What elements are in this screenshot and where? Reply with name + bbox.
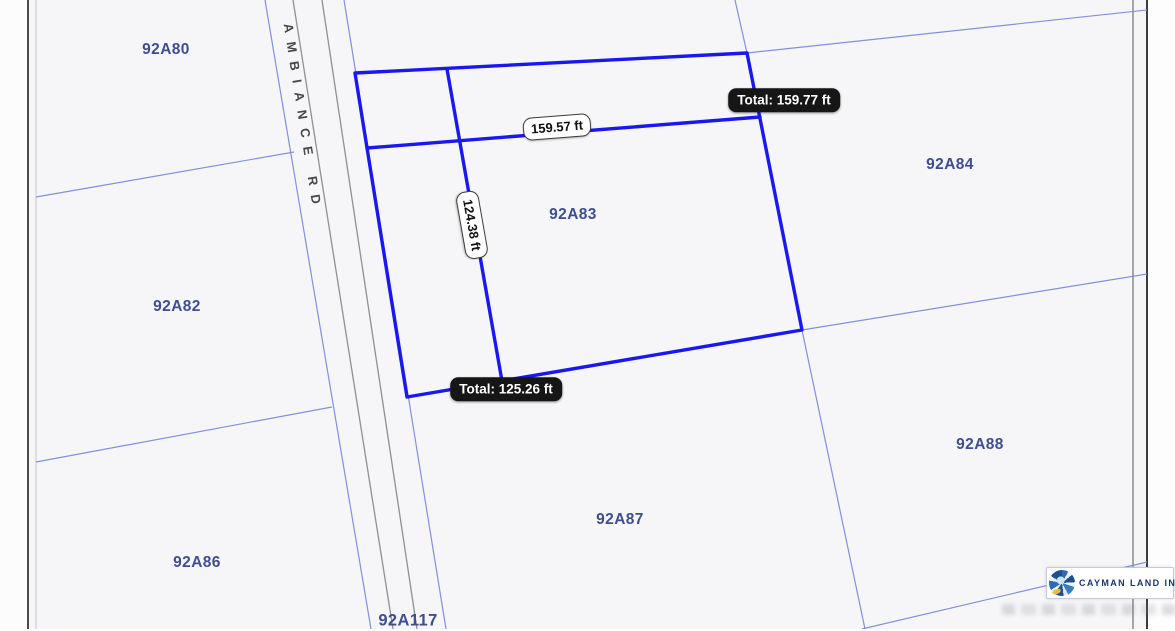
road-edge-left	[293, 0, 393, 629]
parcel-boundaries	[36, 0, 1147, 629]
parcel-label-92a117: 92A117	[378, 612, 437, 631]
parcel-label-92a88: 92A88	[956, 436, 1004, 454]
parcel-label-92a87: 92A87	[596, 511, 644, 529]
measurement-total-badge: Total: 125.26 ft	[450, 377, 562, 401]
cayman-land-info-logo: CAYMAN LAND INFO	[1046, 567, 1174, 599]
boundary-92a84-north	[747, 10, 1147, 53]
map-canvas[interactable]: AMBIANCE RD 92A80 92A82 92A83 92A84 92A8…	[0, 0, 1175, 629]
attribution-text-blurred	[1002, 604, 1175, 615]
logo-text: CAYMAN LAND INFO	[1079, 578, 1175, 588]
measurement-total-badge: Total: 159.77 ft	[728, 88, 840, 112]
parcel-label-92a82: 92A82	[153, 298, 201, 316]
road-edge-right	[322, 0, 417, 629]
boundary-92a80-92a82	[36, 152, 294, 197]
parcel-label-92a86: 92A86	[173, 554, 221, 572]
parcel-label-92a84: 92A84	[926, 156, 974, 174]
boundary-north-stub	[735, 0, 747, 53]
boundary-92a82-92a86	[36, 407, 332, 462]
parcel-label-92a80: 92A80	[142, 41, 190, 59]
left-margin	[0, 0, 28, 629]
parcel-label-92a83: 92A83	[549, 206, 597, 224]
right-margin	[1148, 0, 1175, 629]
boundary-road-west	[265, 0, 371, 629]
boundary-92a84-92a88	[802, 274, 1147, 330]
boundary-92a87-92a88	[802, 330, 865, 629]
globe-icon	[1049, 570, 1075, 596]
